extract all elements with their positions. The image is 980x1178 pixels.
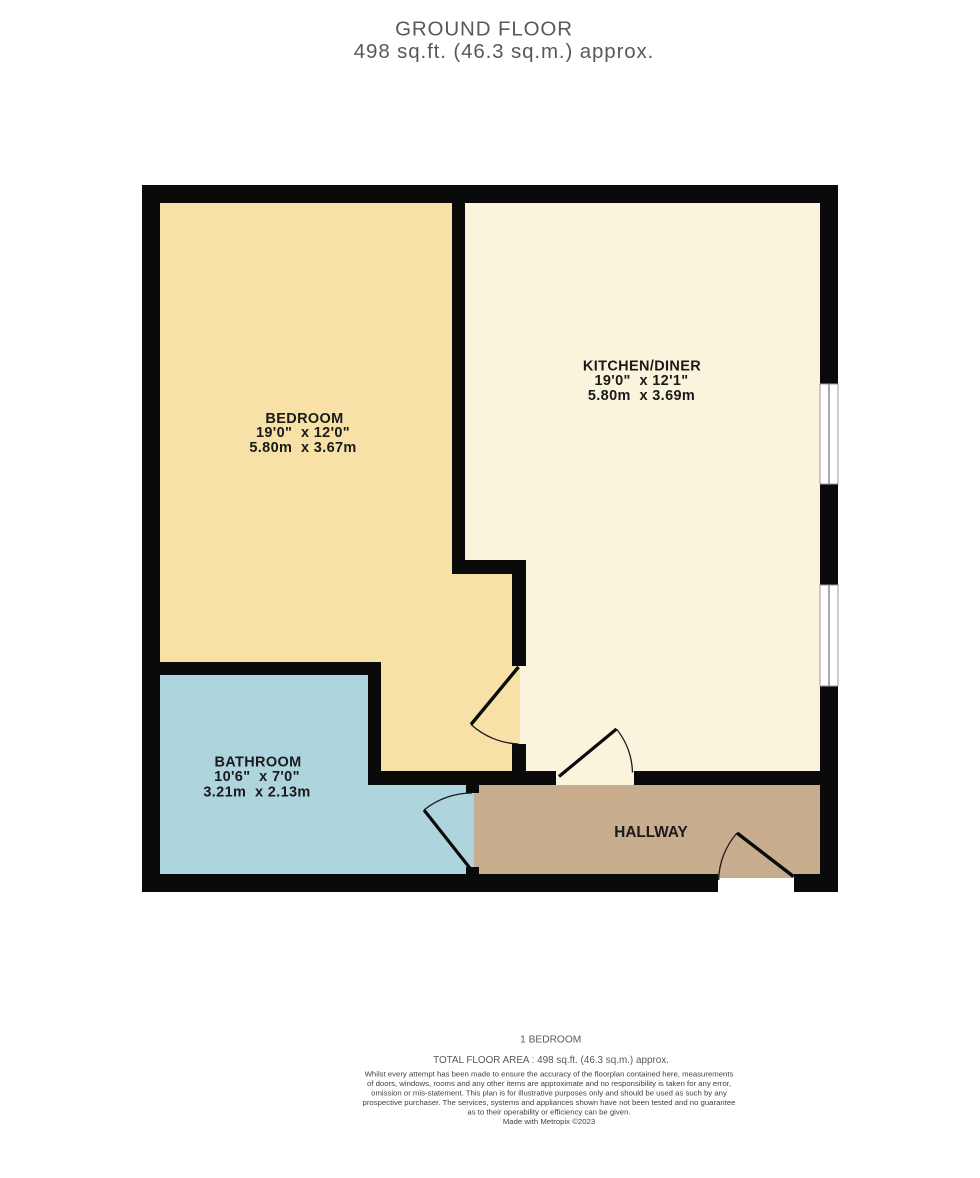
svg-text:1 BEDROOM: 1 BEDROOM bbox=[520, 1034, 581, 1045]
svg-text:as to their operability or eff: as to their operability or efficiency ca… bbox=[467, 1108, 630, 1117]
svg-text:5.80m x 3.69m: 5.80m x 3.69m bbox=[588, 388, 695, 404]
svg-text:TOTAL FLOOR AREA : 498 sq.ft.: TOTAL FLOOR AREA : 498 sq.ft. (46.3 sq.m… bbox=[433, 1055, 669, 1066]
svg-text:Whilst every attempt has been: Whilst every attempt has been made to en… bbox=[365, 1070, 734, 1079]
svg-text:prospective purchaser. The ser: prospective purchaser. The services, sys… bbox=[363, 1098, 736, 1107]
svg-text:Made with Metropix ©2023: Made with Metropix ©2023 bbox=[503, 1117, 595, 1126]
svg-text:10'6" x 7'0": 10'6" x 7'0" bbox=[214, 769, 300, 785]
svg-text:HALLWAY: HALLWAY bbox=[614, 824, 687, 841]
svg-text:19'0" x 12'1": 19'0" x 12'1" bbox=[594, 373, 688, 389]
svg-text:GROUND FLOOR: GROUND FLOOR bbox=[395, 17, 573, 40]
svg-text:5.80m x 3.67m: 5.80m x 3.67m bbox=[249, 440, 356, 456]
svg-text:19'0" x 12'0": 19'0" x 12'0" bbox=[256, 425, 350, 441]
svg-text:3.21m x 2.13m: 3.21m x 2.13m bbox=[203, 784, 310, 800]
svg-text:omission or mis-statement. Thi: omission or mis-statement. This plan is … bbox=[371, 1089, 727, 1098]
svg-text:498 sq.ft. (46.3 sq.m.) approx: 498 sq.ft. (46.3 sq.m.) approx. bbox=[354, 40, 654, 63]
svg-text:KITCHEN/DINER: KITCHEN/DINER bbox=[583, 359, 701, 375]
svg-text:of doors, windows, rooms and a: of doors, windows, rooms and any other i… bbox=[367, 1079, 731, 1088]
